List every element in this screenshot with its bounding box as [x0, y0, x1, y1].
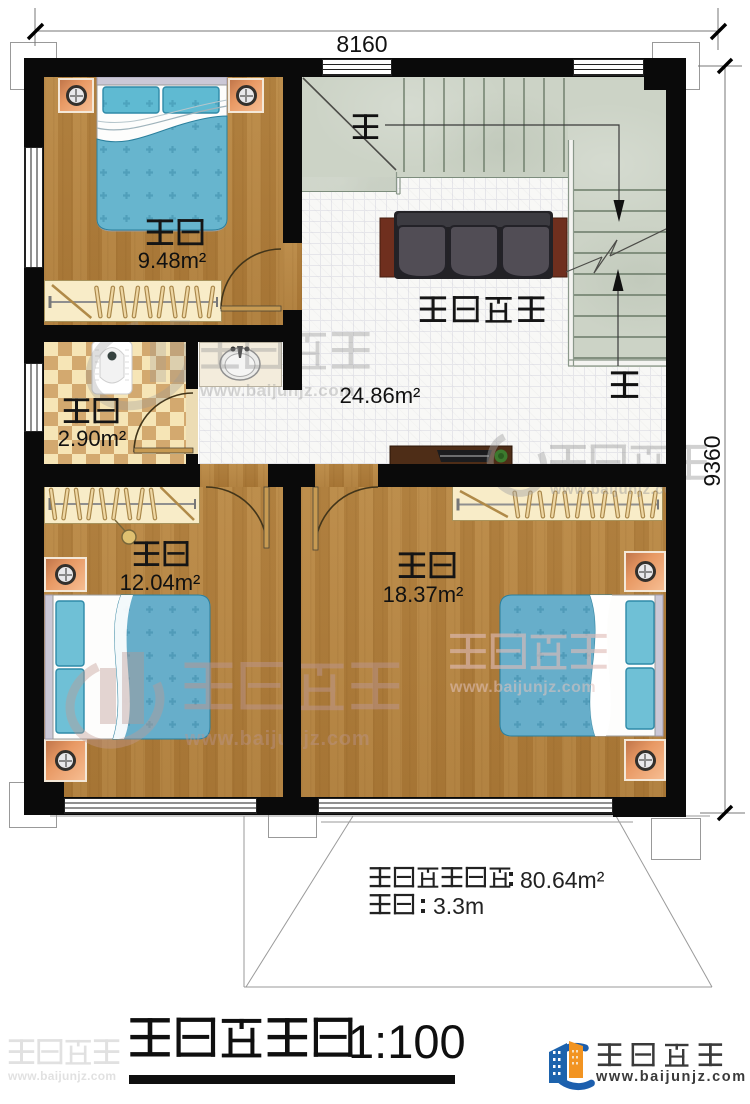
svg-text:www.baijunjz.com: www.baijunjz.com [7, 1069, 116, 1083]
svg-text:12.04m²: 12.04m² [120, 570, 201, 595]
svg-text:8160: 8160 [336, 31, 387, 57]
svg-text:www.baijunjz.com: www.baijunjz.com [595, 1069, 747, 1085]
svg-text:18.37m²: 18.37m² [383, 582, 464, 607]
svg-text:1:100: 1:100 [348, 1015, 466, 1068]
svg-text:www.baijunjz.com: www.baijunjz.com [199, 381, 355, 400]
svg-text:3.3m: 3.3m [433, 893, 484, 919]
svg-text:80.64m²: 80.64m² [520, 867, 605, 893]
svg-text:24.86m²: 24.86m² [340, 383, 421, 408]
svg-text:www.baijunjz.com: www.baijunjz.com [449, 679, 596, 696]
svg-text:9360: 9360 [699, 435, 725, 486]
svg-text:www.baijunjz.com: www.baijunjz.com [184, 728, 370, 750]
svg-text:9.48m²: 9.48m² [138, 248, 206, 273]
svg-text:2.90m²: 2.90m² [58, 426, 126, 451]
